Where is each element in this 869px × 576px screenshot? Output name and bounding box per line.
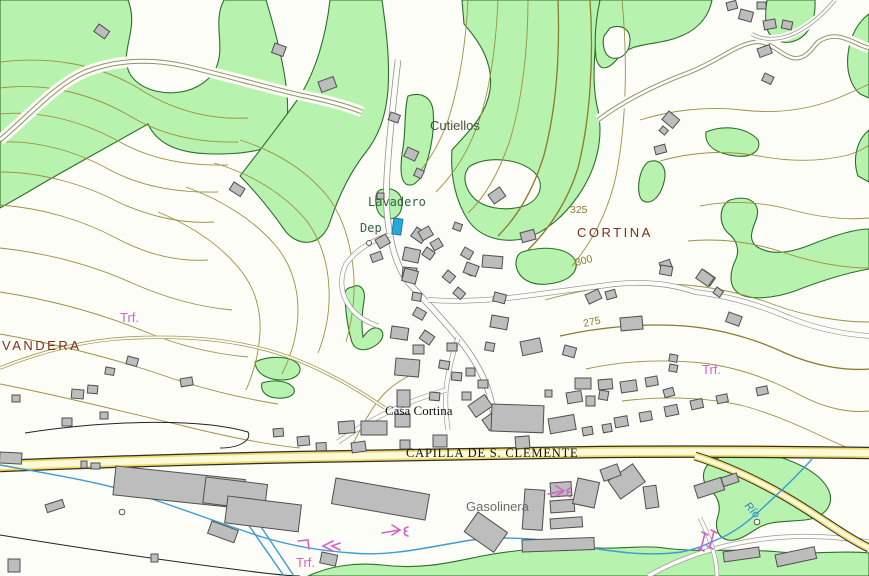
building: [453, 222, 463, 231]
building: [100, 412, 108, 419]
fountain-symbol: [367, 241, 372, 246]
building: [81, 461, 87, 468]
building: [763, 19, 776, 30]
building: [316, 442, 326, 451]
building: [390, 326, 409, 340]
building: [573, 478, 600, 508]
contour-line: [660, 145, 869, 161]
building: [659, 126, 668, 135]
building: [151, 554, 158, 562]
label-lavadero: Lavadero: [368, 195, 426, 209]
building: [520, 338, 542, 356]
vegetation-area: [262, 381, 295, 398]
building: [331, 478, 429, 520]
building: [586, 396, 595, 406]
vegetation-area: [706, 128, 759, 156]
label-casa-cortina: Casa Cortina: [385, 403, 453, 418]
vegetation-area: [516, 248, 576, 284]
building: [297, 436, 310, 446]
label-trf-right: Trf.: [702, 362, 721, 377]
building: [338, 421, 355, 434]
building: [726, 0, 738, 10]
building: [598, 390, 608, 400]
building: [620, 316, 643, 331]
building: [180, 377, 193, 387]
building: [464, 512, 507, 552]
vegetation-area: [855, 130, 869, 182]
building: [8, 559, 20, 572]
building: [738, 9, 753, 22]
contour-line: [158, 212, 260, 390]
label-elevation-300: 300: [574, 253, 594, 269]
building: [602, 423, 612, 432]
boundary-line: [25, 422, 249, 448]
building: [351, 441, 366, 453]
track-path: [598, 37, 869, 120]
building: [639, 411, 652, 422]
building: [62, 418, 72, 426]
building: [659, 265, 672, 276]
vegetation-area: [721, 198, 869, 298]
building: [413, 307, 427, 320]
topographic-map: Cutiellos Lavadero Dep CORTINA VANDERA 3…: [0, 0, 869, 576]
building: [461, 247, 474, 260]
contour-line: [640, 84, 869, 120]
building: [402, 247, 420, 263]
building: [548, 414, 576, 433]
building: [522, 537, 594, 552]
building: [439, 360, 450, 370]
building: [453, 287, 466, 300]
label-capilla: CAPILLA DE S. CLEMENTE: [406, 446, 578, 460]
building: [71, 389, 84, 399]
label-cutiellos: Cutiellos: [430, 118, 480, 133]
contour-line: [0, 384, 300, 448]
building: [645, 376, 658, 387]
contour-line: [0, 248, 232, 310]
building: [669, 364, 678, 372]
flow-arrow: [382, 525, 408, 536]
building: [669, 354, 678, 362]
building: [370, 251, 383, 262]
building: [566, 390, 583, 403]
building: [575, 378, 591, 389]
label-cortina: CORTINA: [577, 225, 653, 240]
building: [493, 292, 507, 304]
building: [361, 421, 387, 435]
building: [545, 390, 552, 397]
label-trf-bottom: Trf.: [296, 555, 315, 570]
building: [462, 392, 471, 400]
building: [413, 345, 424, 354]
building: [620, 380, 637, 393]
label-elevation-325: 325: [570, 204, 588, 216]
building: [87, 385, 98, 394]
vegetation-area: [603, 27, 630, 59]
building: [451, 372, 462, 381]
boundary-line: [0, 535, 300, 576]
building: [664, 404, 679, 416]
vegetation-area: [255, 357, 300, 380]
building: [447, 343, 457, 351]
building: [225, 496, 302, 532]
building: [550, 517, 583, 529]
building: [478, 380, 488, 388]
label-trf-left: Trf.: [120, 310, 139, 325]
label-dep: Dep: [360, 221, 382, 235]
building: [463, 262, 479, 277]
well-symbol: [754, 519, 760, 525]
building: [482, 255, 503, 269]
building: [45, 499, 65, 512]
label-vandera: VANDERA: [2, 338, 81, 353]
building: [442, 270, 455, 283]
building: [490, 315, 509, 330]
building: [762, 73, 774, 84]
building: [582, 426, 593, 436]
map-canvas[interactable]: Cutiellos Lavadero Dep CORTINA VANDERA 3…: [0, 0, 869, 576]
building: [12, 395, 20, 402]
building: [756, 386, 768, 396]
label-elevation-275: 275: [582, 315, 602, 330]
water-deposit: [392, 218, 403, 235]
building: [429, 392, 440, 401]
building: [716, 394, 728, 404]
building: [320, 552, 338, 566]
building: [605, 289, 617, 299]
vegetation-area: [639, 161, 665, 202]
label-gasolinera: Gasolinera: [466, 499, 530, 514]
building: [273, 428, 284, 437]
flow-arrow: [323, 541, 340, 551]
building: [491, 404, 544, 433]
building: [395, 358, 420, 377]
building: [430, 238, 443, 251]
building: [643, 485, 659, 509]
building: [757, 2, 766, 9]
building: [229, 182, 245, 197]
building: [105, 367, 115, 375]
building: [91, 463, 100, 469]
building: [598, 379, 613, 390]
building: [690, 399, 704, 410]
well-symbol: [119, 509, 125, 515]
building: [485, 342, 495, 351]
building: [126, 356, 139, 367]
building: [550, 499, 575, 513]
building: [726, 312, 743, 326]
building: [0, 452, 22, 464]
building: [663, 387, 675, 397]
building: [419, 330, 435, 345]
building: [412, 292, 422, 301]
building: [562, 345, 576, 358]
building: [654, 144, 667, 155]
building: [585, 289, 602, 304]
building: [466, 368, 475, 376]
building: [614, 416, 629, 428]
building: [781, 20, 792, 30]
